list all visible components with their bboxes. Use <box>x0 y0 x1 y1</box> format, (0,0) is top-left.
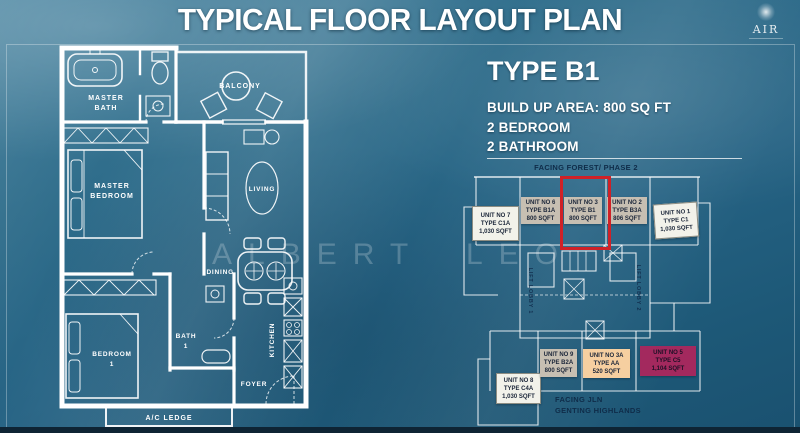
unit-type: TYPE AA <box>594 360 620 368</box>
unit-area: 800 SQFT <box>527 215 555 223</box>
tv-console-icon <box>244 130 279 144</box>
sink-icon <box>146 96 170 116</box>
logo-glow-icon <box>757 3 775 21</box>
toilet-icon <box>152 52 168 84</box>
bath1-room: BATH 1 <box>176 286 230 363</box>
balcony-chair-left-icon <box>201 92 227 118</box>
dining-label: DINING <box>206 269 234 276</box>
unit-box-7: UNIT NO 7 TYPE C1A 1,030 SQFT <box>472 206 519 241</box>
kitchen-counter-icon <box>284 278 302 388</box>
master-bedroom-label-2: BEDROOM <box>90 193 134 200</box>
unit-area: 1,030 SQFT <box>660 223 693 233</box>
kitchen-label: KITCHEN <box>269 323 276 358</box>
unit-type: TYPE B3A <box>612 207 641 215</box>
selected-unit-highlight <box>560 176 611 250</box>
unit-area: 1,030 SQFT <box>479 228 512 236</box>
unit-no: UNIT NO 5 <box>653 349 683 357</box>
bath1-sink-icon <box>206 286 224 302</box>
balcony-label: BALCONY <box>219 83 261 90</box>
slide: TYPICAL FLOOR LAYOUT PLAN AIR <box>0 0 800 433</box>
kitchen-area: KITCHEN <box>269 278 302 388</box>
bedroom-count-text: 2 BEDROOM <box>487 120 571 135</box>
foyer-area: FOYER <box>241 381 267 388</box>
info-underline <box>487 158 742 159</box>
lift-lobby-2-label: LIFT LOBBY 2 <box>635 258 641 318</box>
living-label: LIVING <box>249 186 275 193</box>
bedroom1-room: BEDROOM 1 <box>64 280 156 398</box>
unit-area: 806 SQFT <box>613 215 641 223</box>
floor-plan: A/C LEDGE MASTER BATH <box>54 38 312 430</box>
unit-box-8: UNIT NO 8 TYPE C4A 1,030 SQFT <box>496 373 541 404</box>
unit-no: UNIT NO 3A <box>589 352 623 360</box>
bottom-edge-bar <box>0 427 800 433</box>
site-key-plan: FACING FOREST/ PHASE 2 <box>460 163 712 429</box>
unit-type: TYPE C1A <box>481 220 510 228</box>
unit-type: TYPE B2A <box>544 359 573 367</box>
unit-box-3a: UNIT NO 3A TYPE AA 520 SQFT <box>583 349 630 378</box>
unit-type: TYPE C5 <box>655 357 680 365</box>
unit-area: 1,104 SQFT <box>652 365 685 373</box>
unit-box-6: UNIT NO 6 TYPE B1A 800 SQFT <box>521 197 560 224</box>
sofa-icon <box>206 152 228 220</box>
ac-ledge: A/C LEDGE <box>106 406 232 426</box>
unit-no: UNIT NO 9 <box>544 351 574 359</box>
bath1-tub-icon <box>202 350 230 363</box>
master-bath-label-1: MASTER <box>88 95 124 102</box>
lift-lobby-1-label: LIFT LOBBY 1 <box>527 261 533 321</box>
unit-box-5: UNIT NO 5 TYPE C5 1,104 SQFT <box>640 346 696 376</box>
unit-box-1: UNIT NO 1 TYPE C1 1,030 SQFT <box>653 202 699 240</box>
unit-no: UNIT NO 7 <box>481 212 511 220</box>
unit-type-heading: TYPE B1 <box>487 56 600 87</box>
unit-type: TYPE C4A <box>504 385 533 393</box>
air-logo: AIR <box>742 3 790 39</box>
unit-no: UNIT NO 2 <box>612 199 642 207</box>
living-room: LIVING <box>206 130 279 220</box>
ac-ledge-label: A/C LEDGE <box>145 415 192 422</box>
bedroom1-label-2: 1 <box>110 361 114 368</box>
page-title: TYPICAL FLOOR LAYOUT PLAN <box>16 2 784 38</box>
logo-rule <box>749 38 783 39</box>
logo-text: AIR <box>742 23 790 36</box>
bath1-label-1: BATH <box>176 333 197 340</box>
bathtub-icon <box>68 50 122 86</box>
unit-area: 520 SQFT <box>593 368 621 376</box>
unit-area: 800 SQFT <box>545 367 573 375</box>
facing-jln-line2: GENTING HIGHLANDS <box>555 405 641 416</box>
unit-box-9: UNIT NO 9 TYPE B2A 800 SQFT <box>540 349 577 377</box>
unit-area: 1,030 SQFT <box>502 393 535 401</box>
master-bedroom-room: MASTER BEDROOM <box>64 128 148 238</box>
unit-type: TYPE B1A <box>526 207 555 215</box>
balcony-room: BALCONY <box>201 72 282 119</box>
build-up-area-text: BUILD UP AREA: 800 SQ FT <box>487 100 671 115</box>
master-bath-label-2: BATH <box>95 105 118 112</box>
balcony-chair-right-icon <box>256 93 282 119</box>
unit-no: UNIT NO 6 <box>526 199 556 207</box>
bath1-label-2: 1 <box>184 343 188 350</box>
facing-jln-line1: FACING JLN <box>555 394 641 405</box>
wardrobe2-icon <box>64 280 156 295</box>
unit-box-2: UNIT NO 2 TYPE B3A 806 SQFT <box>607 197 647 224</box>
master-bath-room: MASTER BATH <box>68 50 170 116</box>
facing-jln-label: FACING JLN GENTING HIGHLANDS <box>555 394 641 416</box>
wardrobe-icon <box>64 128 148 143</box>
bedroom1-label-1: BEDROOM <box>92 351 132 358</box>
foyer-label: FOYER <box>241 381 267 388</box>
master-bedroom-label-1: MASTER <box>94 183 130 190</box>
bathroom-count-text: 2 BATHROOM <box>487 139 579 154</box>
unit-no: UNIT NO 8 <box>504 377 534 385</box>
